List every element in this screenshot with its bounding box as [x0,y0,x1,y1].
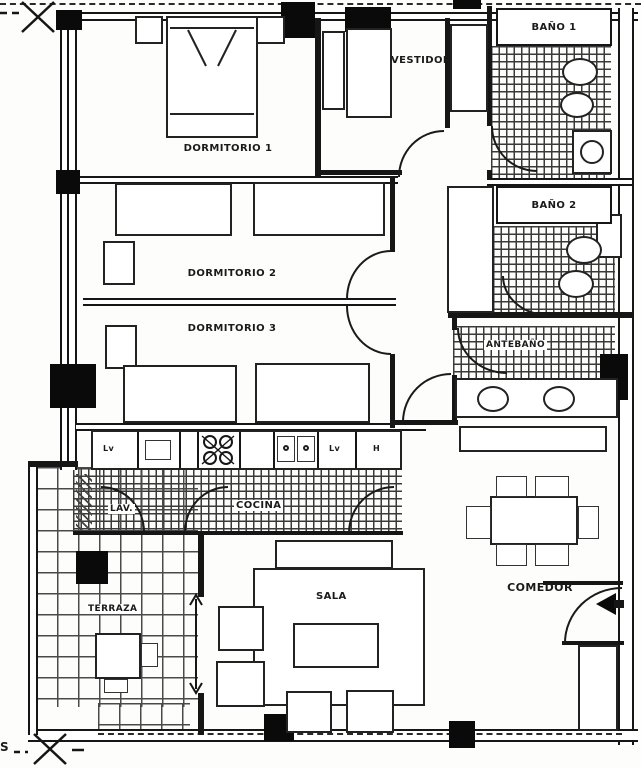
bed-pillow-lines [168,18,256,136]
sofa [275,540,393,569]
nightstand [105,325,137,369]
sink [580,140,604,164]
nightstand [256,16,285,44]
wall-dorm1-vestidor [315,18,321,176]
wall-sala-terrace-lower [198,693,204,735]
wall-terrace-top [28,461,78,467]
column [76,551,108,584]
room-label-lavadero: LAV. [108,504,135,514]
column [56,170,80,194]
stove-icon [199,433,237,471]
bidet [560,92,594,118]
cabinet-label: Lv [329,444,340,453]
drain [283,445,289,451]
wall-hall-left-lower [390,354,395,428]
dining-chair [496,544,527,566]
room-label-dormitorio3: DORMITORIO 3 [172,323,292,334]
nightstand [103,241,135,285]
drain [303,445,309,451]
hall-closet [447,186,494,313]
sideboard [459,426,607,452]
wall-dorm2-dorm3 [83,298,396,306]
survey-marker-icon [0,0,58,44]
sliding-door-arrow-icon [188,593,204,699]
entry-closet [578,645,618,731]
property-line-bottom [98,733,622,736]
single-bed [115,183,232,236]
floor-plan: Lv Lv H [0,0,641,768]
room-label-band-bano2: BAÑO 2 [496,186,612,224]
terrace-chair [104,679,128,693]
column [50,364,96,408]
dining-chair [466,506,491,539]
room-label-band-bano1: BAÑO 1 [496,8,612,46]
armchair [346,690,394,733]
bidet [558,270,594,298]
room-label-vestidor: VESTIDOR [380,55,462,66]
wall-hall-left-upper [390,176,395,252]
armchair [216,661,265,707]
duct-hatch [76,474,92,534]
kitchen-counter: Lv Lv H [91,430,402,470]
wall-sala-terrace-upper [198,535,204,597]
dining-chair [578,506,599,539]
toilet [562,58,598,86]
wall-vestidor-bottom [318,170,402,175]
sink [543,386,575,412]
room-label-terraza: TERRAZA [86,604,139,614]
fridge-label: H [373,444,380,453]
survey-marker-icon [12,730,92,768]
room-label-bano1: BAÑO 1 [531,22,576,33]
single-bed [255,363,370,423]
closet [346,28,392,118]
armchair [286,691,332,733]
room-label-antebano: ANTEBAÑO [484,340,547,350]
counter-divider [355,432,357,468]
armchair [218,606,264,651]
counter-divider [239,432,241,468]
entry-arrow-icon [596,593,616,615]
door-arc-vestidor [398,130,444,177]
terrace-chair [141,643,158,667]
dining-chair [535,476,569,497]
coffee-table [293,623,379,668]
wall-terrace-left [28,461,38,735]
door-arc-dorm2 [346,250,391,299]
south-marker-label: S [0,740,9,754]
double-bed [166,16,258,138]
single-bed [253,182,385,236]
room-label-cocina: COCINA [234,500,283,511]
dining-chair [535,544,569,566]
toilet [566,236,602,264]
dining-table [490,496,578,545]
single-bed [123,365,237,423]
counter-divider [317,432,319,468]
column [56,10,82,30]
door-arc-dorm3 [346,306,391,355]
terrace-tile-floor-strip [98,703,190,731]
room-label-sala: SALA [316,591,347,602]
closet [450,24,488,112]
room-label-bano2: BAÑO 2 [531,200,576,211]
cabinet-label: Lv [103,444,114,453]
entry-arrow-tail [614,600,624,608]
terrace-table [95,633,141,679]
counter-divider [273,432,275,468]
column [449,721,475,748]
counter-divider [179,432,181,468]
room-label-dormitorio1: DORMITORIO 1 [168,143,288,154]
counter-divider [137,432,139,468]
column [281,2,315,38]
door-arc-hall [402,373,451,422]
property-line-top [0,3,641,6]
washing-machine [145,440,171,460]
column [453,0,481,9]
room-label-comedor: COMEDOR [498,581,582,594]
closet [322,31,345,110]
sink [477,386,509,412]
room-label-dormitorio2: DORMITORIO 2 [172,268,292,279]
nightstand [135,16,163,44]
dining-chair [496,476,527,497]
wall-bathroom1-bathroom2 [487,178,632,186]
